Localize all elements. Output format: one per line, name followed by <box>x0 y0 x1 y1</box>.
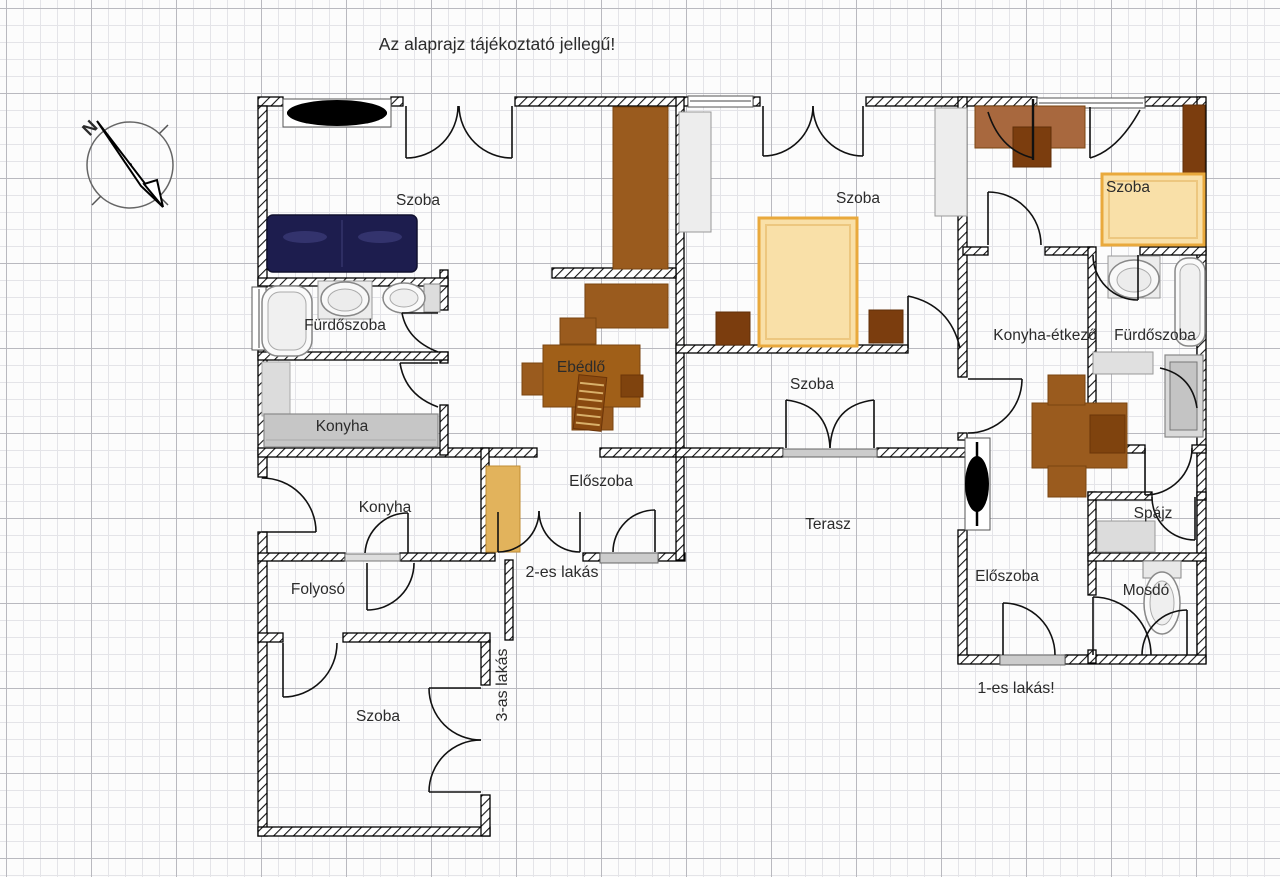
door-eloszoba1-exit <box>1003 603 1055 655</box>
door-eloszoba2-exit <box>613 510 655 552</box>
compass-needle-tail <box>144 180 163 207</box>
sofa-navy <box>267 215 417 272</box>
cabinet-gray-right <box>1093 352 1153 374</box>
window-terrace-with-lens <box>965 438 990 530</box>
apartment-2-label: 2-es lakás <box>526 564 599 581</box>
room-label-konyha-lower: Konyha <box>359 499 412 516</box>
room-label-ebedlo: Ebédlő <box>557 359 605 376</box>
room-label-mosdo: Mosdó <box>1123 582 1170 599</box>
room-label-szoba-top-left: Szoba <box>396 192 440 209</box>
door-szoba-tr-to-kitchen <box>988 192 1041 245</box>
room-label-furdoszoba-left: Fürdőszoba <box>304 317 386 334</box>
nightstand-right <box>869 310 903 343</box>
bed-middle <box>759 218 857 346</box>
door-kitchen-dining-from-terrace <box>968 379 1022 433</box>
toilet-left <box>383 283 440 313</box>
door-bathroom-left <box>402 313 438 352</box>
door-center-room-terrace-double <box>786 400 874 448</box>
door-kitchen-upper <box>400 363 438 407</box>
floorplan-canvas: N Az alaprajz tájékoztató jellegű! Szoba… <box>0 0 1280 877</box>
nightstand-left <box>716 312 750 345</box>
wardrobe-tall-brown <box>613 107 668 269</box>
room-label-konyha-etkezo: Konyha-étkező <box>993 327 1096 344</box>
kitchen-dining-table <box>1032 375 1127 497</box>
closet-right-gray <box>935 108 967 216</box>
door-bottom-room-north <box>283 643 337 697</box>
compass: N <box>78 116 173 208</box>
floorplan-drawing: N Az alaprajz tájékoztató jellegű! Szoba… <box>0 0 1280 877</box>
door-bottom-room-double <box>429 688 481 792</box>
threshold-eloszoba1 <box>1000 655 1065 665</box>
threshold-terrace-door <box>783 449 877 457</box>
sink-right <box>1108 256 1160 298</box>
window-top-left-with-lens <box>283 99 391 127</box>
plan-title: Az alaprajz tájékoztató jellegű! <box>379 34 615 54</box>
room-label-eloszoba-1: Előszoba <box>975 568 1039 585</box>
closet-left-gray <box>679 112 711 232</box>
door-main-entrance-double <box>406 106 512 158</box>
room-label-folyoso: Folyosó <box>291 581 345 598</box>
room-label-konyha-upper: Konyha <box>316 418 369 435</box>
door-kitchen-lower-south <box>365 513 408 553</box>
room-label-terasz: Terasz <box>805 516 851 533</box>
shower-cabin <box>1165 355 1203 437</box>
door-top-right-room-right <box>1090 107 1140 158</box>
room-label-szoba-center: Szoba <box>790 376 834 393</box>
threshold-konyha-lower <box>345 554 400 561</box>
pantry-shelf <box>1097 521 1155 552</box>
sink-left <box>318 281 372 319</box>
door-middle-bedroom-double <box>763 106 863 156</box>
window-top-middle <box>688 96 753 107</box>
kitchen-upper-cabinet <box>262 362 290 416</box>
door-kitchen-lower-window <box>262 478 316 532</box>
threshold-eloszoba2 <box>600 553 658 563</box>
door-hallway <box>367 563 414 610</box>
room-label-furdoszoba-right: Fürdőszoba <box>1114 327 1196 344</box>
apartment-1-label: 1-es lakás! <box>977 680 1054 697</box>
room-label-szoba-middle: Szoba <box>836 190 880 207</box>
wardrobe-tan <box>486 466 520 552</box>
door-bathroom-right-corridor <box>1145 448 1192 495</box>
ladder <box>573 375 606 432</box>
door-bedroom-to-terrace-corner <box>908 296 960 348</box>
room-label-szoba-bottom-left: Szoba <box>356 708 400 725</box>
room-label-spajz: Spájz <box>1134 505 1173 522</box>
apartment-3-label: 3-as lakás <box>494 649 511 722</box>
room-label-eloszoba-2: Előszoba <box>569 473 633 490</box>
room-label-szoba-top-right: Szoba <box>1106 179 1150 196</box>
wardrobe-right-edge <box>1183 105 1205 175</box>
